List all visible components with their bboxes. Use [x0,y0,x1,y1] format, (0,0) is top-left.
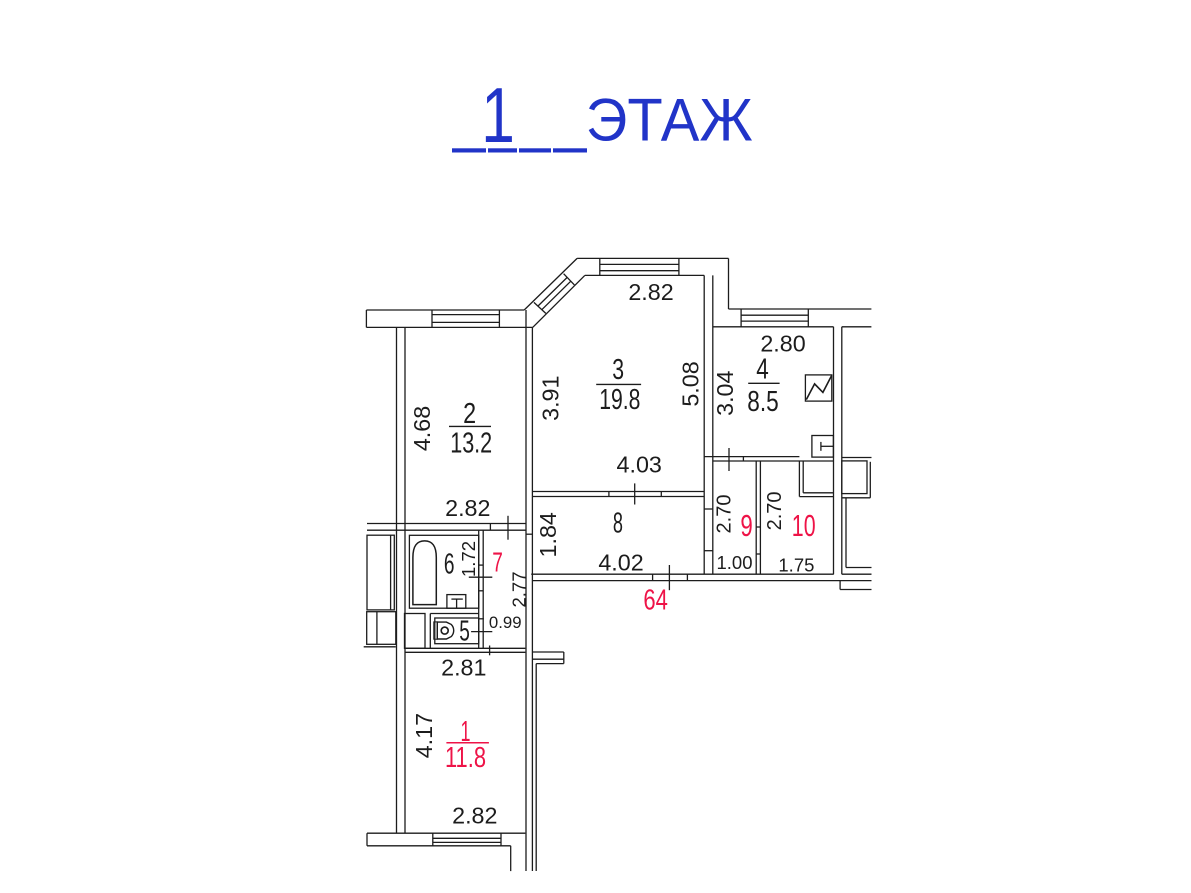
svg-text:0.99: 0.99 [489,613,522,632]
svg-text:5: 5 [459,615,470,647]
svg-text:2.70: 2.70 [764,491,786,530]
svg-text:4.68: 4.68 [409,406,435,451]
svg-text:11.8: 11.8 [445,742,486,774]
svg-text:3.04: 3.04 [712,370,738,415]
svg-text:5.08: 5.08 [677,361,703,406]
svg-text:64: 64 [643,584,668,616]
svg-text:2: 2 [463,398,476,430]
svg-text:1: 1 [481,72,515,159]
svg-text:13.2: 13.2 [450,428,492,460]
svg-text:1.75: 1.75 [778,554,814,575]
svg-text:ЭТАЖ: ЭТАЖ [586,86,753,153]
svg-text:1.00: 1.00 [716,552,752,573]
svg-text:3: 3 [612,354,624,386]
svg-text:2.82: 2.82 [452,802,497,828]
svg-text:8: 8 [613,508,623,540]
svg-text:6: 6 [444,548,455,580]
svg-text:4.03: 4.03 [617,452,662,478]
svg-text:8.5: 8.5 [747,386,778,418]
svg-text:19.8: 19.8 [599,384,640,416]
svg-text:2.80: 2.80 [760,330,805,356]
svg-text:2.77: 2.77 [508,571,529,607]
svg-text:4.17: 4.17 [411,713,437,758]
svg-text:4: 4 [756,354,769,386]
svg-text:1.72: 1.72 [458,541,479,577]
svg-text:1.84: 1.84 [535,512,561,557]
svg-text:2.81: 2.81 [441,655,486,681]
svg-text:2.82: 2.82 [628,279,673,305]
svg-text:2.82: 2.82 [445,495,490,521]
svg-text:10: 10 [792,509,816,543]
svg-text:4.02: 4.02 [598,549,643,575]
svg-text:7: 7 [492,547,503,578]
svg-text:2.70: 2.70 [714,495,736,534]
svg-text:3.91: 3.91 [538,376,564,421]
svg-text:9: 9 [740,509,752,543]
